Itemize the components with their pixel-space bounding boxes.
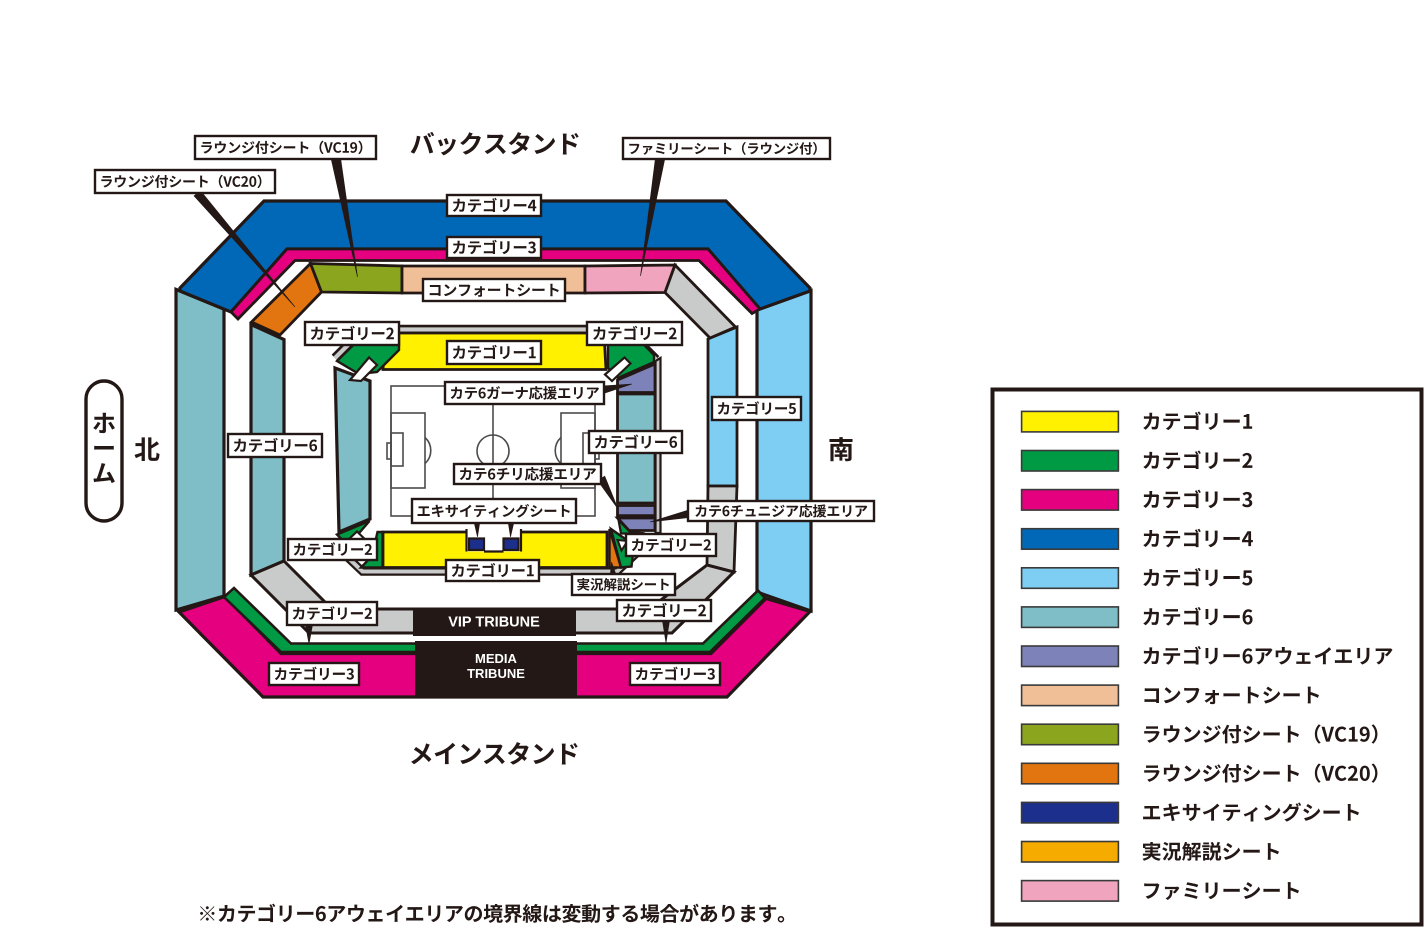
svg-text:MEDIA: MEDIA — [475, 651, 518, 666]
svg-text:VIP TRIBUNE: VIP TRIBUNE — [448, 615, 540, 631]
svg-text:TRIBUNE: TRIBUNE — [467, 666, 525, 681]
